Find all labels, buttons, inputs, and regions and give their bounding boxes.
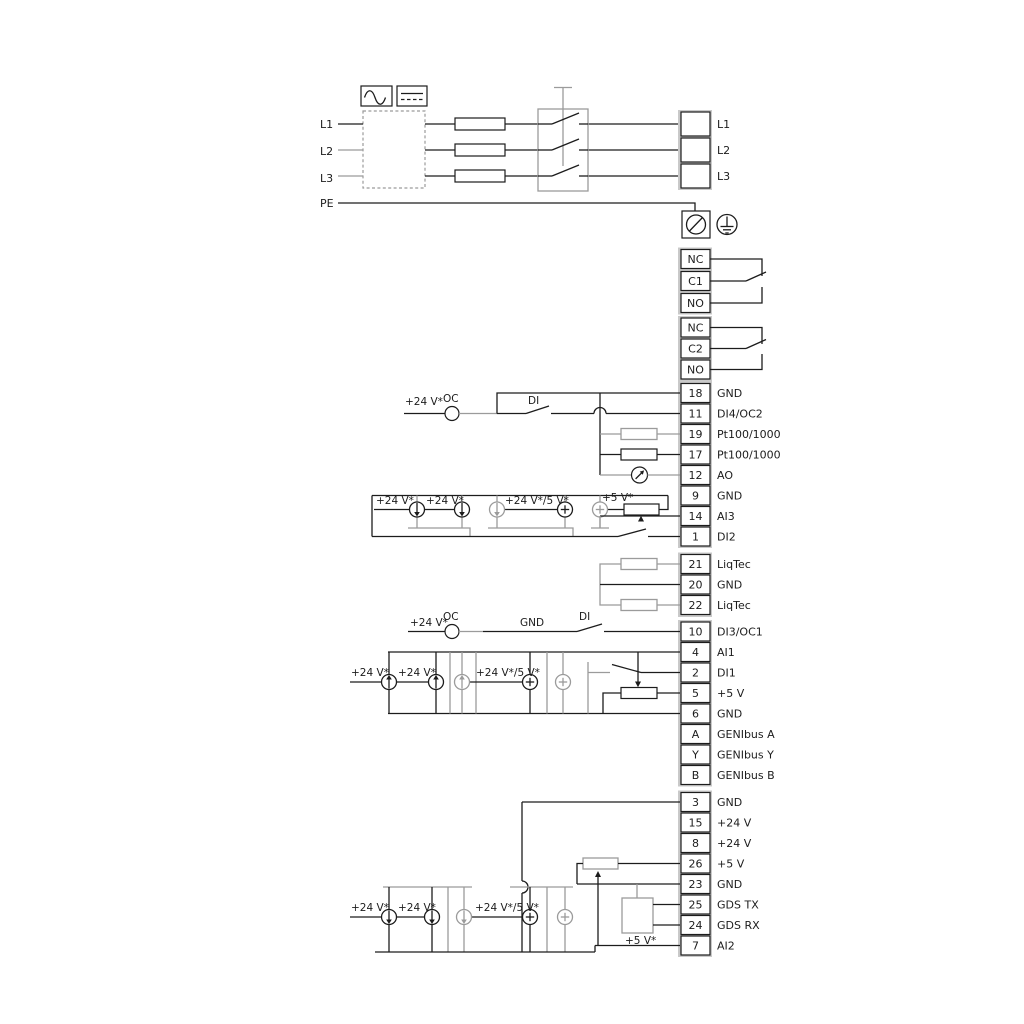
rectifier-filter-box [363, 111, 425, 188]
terminal-number: 26 [689, 858, 703, 871]
di-label: DI [579, 611, 590, 623]
resistor-icon [621, 429, 657, 440]
liqtec-block: 21 20 22 LiqTec GND LiqTec [678, 553, 751, 618]
v24-label: +24 V* [398, 902, 436, 914]
relay2-no: NO [687, 364, 704, 377]
terminal-number: 20 [689, 579, 703, 592]
v24-5v-label: +24 V*/5 V* [475, 902, 539, 914]
terminal-label: AO [717, 469, 733, 482]
power-wiring [338, 124, 695, 211]
terminal-number: 8 [692, 837, 699, 850]
terminal-label: GND [717, 796, 742, 809]
output-label-l2: L2 [717, 144, 730, 157]
v24-label: +24 V* [376, 495, 414, 507]
terminal-label: LiqTec [717, 599, 751, 612]
v24-label: +24 V* [405, 396, 443, 408]
terminal-number: 15 [689, 817, 703, 830]
terminal-label: GDS RX [717, 919, 760, 932]
terminal-number: 11 [689, 408, 703, 421]
relay2-contact-icon [710, 328, 766, 370]
oc-circle-icon [445, 407, 459, 421]
terminal-label: GDS TX [717, 899, 759, 912]
terminal-number: 25 [689, 899, 703, 912]
terminal-label: +5 V [717, 687, 745, 700]
terminal-label: GND [717, 708, 742, 721]
terminal-number: 22 [689, 599, 703, 612]
v5-label: +5 V* [602, 492, 633, 504]
terminal-label: GENIbus A [717, 728, 775, 741]
fuse-icon [455, 144, 505, 156]
power-input-section: L1 L2 L3 PE [320, 86, 737, 238]
terminal-label: GND [717, 490, 742, 503]
current-source-down-icon [457, 910, 472, 925]
v24-label: +24 V* [398, 667, 436, 679]
terminal-number: 10 [689, 626, 703, 639]
output-label-l3: L3 [717, 170, 730, 183]
liqtec-wiring [600, 559, 680, 611]
terminal-number: 18 [689, 387, 703, 400]
terminal-label: AI3 [717, 510, 735, 523]
resistor-icon [621, 559, 657, 570]
v24-label: +24 V* [426, 495, 464, 507]
mains-terminal-block [678, 110, 712, 190]
potentiometer-icon [621, 688, 657, 699]
terminal-number: A [692, 728, 700, 741]
terminal-label: GENIbus Y [717, 749, 774, 762]
fuse-icon [455, 170, 505, 182]
terminal-number: 12 [689, 469, 703, 482]
resistor-icon [621, 449, 657, 460]
wiring-diagram: L1 L2 L3 PE [0, 0, 1024, 1024]
terminal-number: 6 [692, 708, 699, 721]
relay1-nc: NC [688, 253, 704, 266]
relay1-block: NC C1 NO [678, 248, 766, 315]
terminal-label: DI1 [717, 667, 736, 680]
terminal-number: 2 [692, 667, 699, 680]
relay1-contact-icon [710, 259, 766, 303]
terminal-label: Pt100/1000 [717, 449, 781, 462]
input-label-l1: L1 [320, 118, 333, 131]
current-source-down-icon [490, 502, 505, 517]
current-source-plus-icon [556, 675, 571, 690]
wiper-arrow [595, 871, 601, 877]
current-source-plus-icon [558, 910, 573, 925]
current-source-plus-icon [593, 502, 608, 517]
terminal-label: Pt100/1000 [717, 428, 781, 441]
terminal-number: 23 [689, 878, 703, 891]
di-switch-icon [526, 406, 549, 414]
terminal-number: 19 [689, 428, 703, 441]
gds-sensor-box [622, 898, 653, 933]
relay1-no: NO [687, 297, 704, 310]
terminal-number: 3 [692, 796, 699, 809]
di-switch-icon [577, 624, 602, 632]
terminal-number: Y [691, 749, 699, 762]
oc-label: OC [443, 611, 459, 623]
terminal-label: GND [717, 878, 742, 891]
di-switch-icon [612, 665, 641, 673]
io-block1: 18 11 19 17 12 9 14 1 GND DI4/OC2 Pt100/… [678, 382, 781, 549]
terminal-number: 14 [689, 510, 703, 523]
terminal-number: 24 [689, 919, 703, 932]
potentiometer-icon [583, 858, 618, 869]
v5-label: +5 V* [625, 935, 656, 947]
earth-ground-icon [717, 215, 737, 235]
wiper-arrow [638, 516, 644, 522]
wiper-arrow [635, 682, 641, 688]
v24-5v-label: +24 V*/5 V* [505, 495, 569, 507]
dc-icon [397, 86, 427, 106]
gnd-label: GND [520, 617, 544, 629]
screw-terminal-icon [682, 211, 710, 238]
terminal-number: 17 [689, 449, 703, 462]
relay2-nc: NC [688, 322, 704, 335]
resistor-icon [621, 600, 657, 611]
io-block2: 10 4 2 5 6 A Y B DI3/OC1 AI1 DI1 +5 V GN… [678, 620, 775, 787]
terminal-label: +24 V [717, 817, 752, 830]
terminal-label: GND [717, 579, 742, 592]
input-label-l2: L2 [320, 145, 333, 158]
wiring-diagram-page: L1 L2 L3 PE [0, 0, 1024, 1024]
di4-pt-ao-wiring [404, 393, 680, 483]
terminal-label: +5 V [717, 858, 745, 871]
terminal-number: 5 [692, 687, 699, 700]
terminal-label: AI2 [717, 940, 735, 953]
ai2-gds-wiring [350, 802, 680, 952]
terminal-number: B [692, 769, 700, 782]
terminal-label: DI2 [717, 531, 736, 544]
terminal-label: LiqTec [717, 558, 751, 571]
main-switch-icon [538, 88, 588, 192]
current-source-up-icon [455, 675, 470, 690]
v24-label: +24 V* [351, 902, 389, 914]
di-label: DI [528, 395, 539, 407]
terminal-number: 7 [692, 940, 699, 953]
relay1-c1: C1 [688, 275, 703, 288]
v24-label: +24 V* [351, 667, 389, 679]
fuse-icon [455, 118, 505, 130]
terminal-number: 21 [689, 558, 703, 571]
terminal-label: GENIbus B [717, 769, 775, 782]
terminal-label: DI4/OC2 [717, 408, 763, 421]
terminal-label: GND [717, 387, 742, 400]
terminal-number: 1 [692, 531, 699, 544]
input-label-l3: L3 [320, 172, 333, 185]
v24-5v-label: +24 V*/5 V* [476, 667, 540, 679]
ac-icon [361, 86, 392, 106]
potentiometer-icon [624, 504, 659, 515]
oc-label: OC [443, 393, 459, 405]
relay2-c2: C2 [688, 343, 703, 356]
terminal-label: +24 V [717, 837, 752, 850]
relay2-block: NC C2 NO [678, 316, 766, 382]
terminal-number: 9 [692, 490, 699, 503]
io-block3: 3 15 8 26 23 25 24 7 GND +24 V +24 V +5 … [678, 791, 760, 958]
ai1-sensor-wiring [350, 652, 680, 714]
analog-output-meter-icon [632, 467, 648, 483]
input-label-pe: PE [320, 197, 334, 210]
terminal-number: 4 [692, 646, 699, 659]
output-label-l1: L1 [717, 118, 730, 131]
di-switch-icon [618, 529, 646, 537]
terminal-label: DI3/OC1 [717, 626, 763, 639]
terminal-label: AI1 [717, 646, 735, 659]
